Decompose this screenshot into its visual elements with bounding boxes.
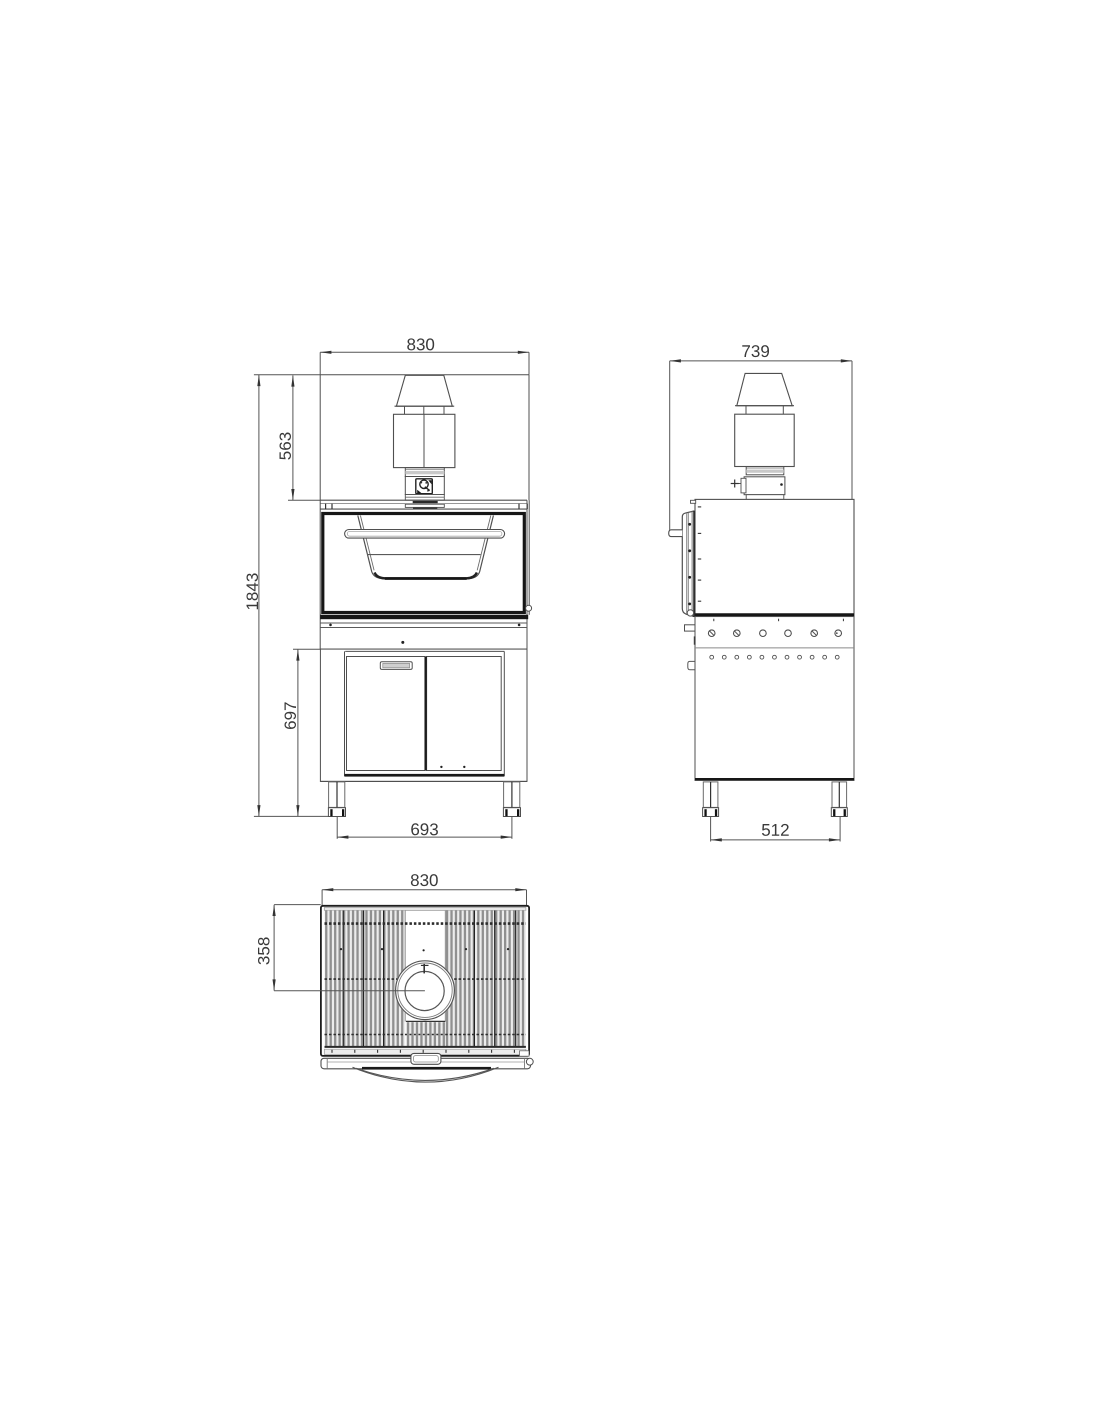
svg-text:563: 563 (276, 432, 295, 460)
svg-text:739: 739 (741, 342, 769, 361)
svg-text:512: 512 (761, 821, 789, 840)
svg-text:358: 358 (254, 937, 273, 965)
svg-text:830: 830 (410, 871, 438, 890)
svg-text:1843: 1843 (243, 573, 262, 611)
svg-text:697: 697 (281, 702, 300, 730)
svg-text:830: 830 (407, 335, 435, 354)
svg-text:693: 693 (410, 820, 438, 839)
